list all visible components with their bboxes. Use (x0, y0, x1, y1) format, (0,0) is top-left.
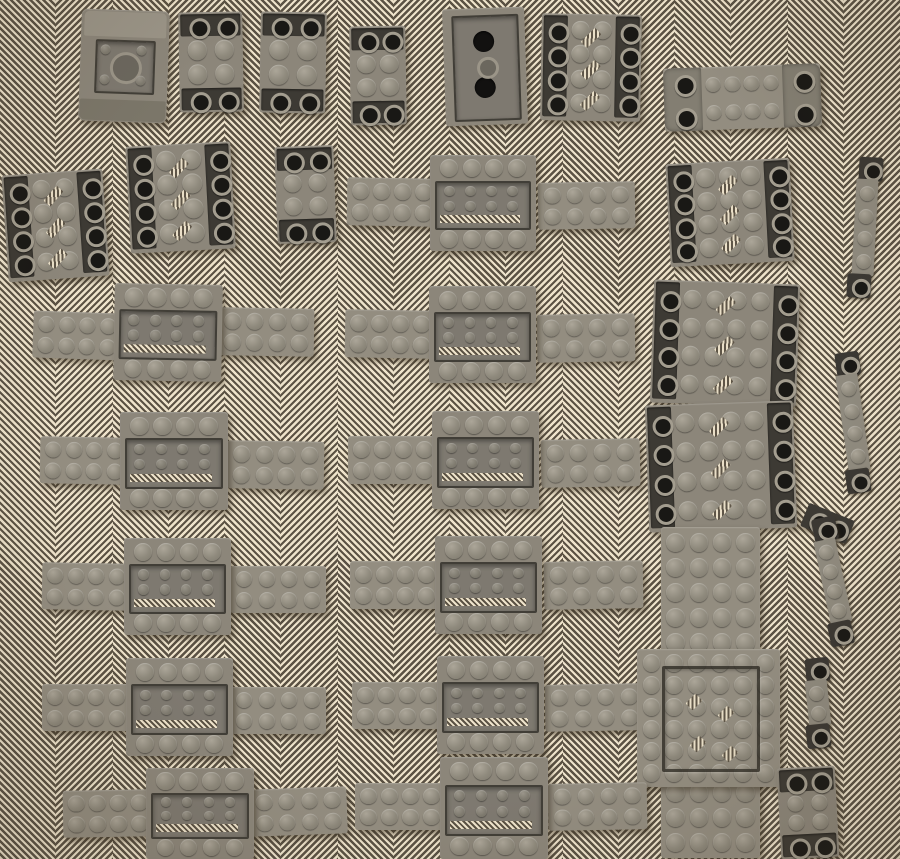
lego-inverted-slope-brick-2x3 (274, 145, 336, 244)
hollow-stud (358, 31, 379, 52)
stud (395, 441, 412, 458)
lego-vehicle-mudguard-plate-2x8 (663, 63, 822, 131)
stud (472, 703, 483, 714)
hollow-stud (86, 250, 108, 272)
hollow-stud (769, 189, 791, 211)
hollow-stud (81, 177, 103, 199)
lego-double-inverted-slope-brick (540, 13, 642, 122)
stud (183, 705, 194, 716)
stud (666, 583, 685, 602)
stud (443, 317, 454, 328)
stud (176, 489, 194, 507)
stud (134, 459, 145, 470)
slope-face-bottom (782, 833, 837, 858)
hollow-stud (212, 198, 234, 220)
open-bottom-gap (442, 473, 523, 481)
stud (488, 416, 506, 434)
stud (596, 566, 613, 583)
stud (566, 340, 583, 357)
stud (454, 790, 465, 801)
hollow-stud (775, 499, 797, 521)
lego-plate (541, 438, 641, 488)
hollow-stud (132, 154, 154, 176)
slope-face-left (652, 282, 680, 400)
lego-vehicle-base-4x6-recessed-center (430, 155, 536, 251)
open-bottom-gap (447, 718, 528, 726)
stud (746, 469, 766, 489)
stud (450, 762, 468, 780)
stud (255, 467, 272, 484)
hollow-stud (789, 837, 811, 859)
slope-face-top (779, 768, 834, 793)
stud (643, 720, 661, 738)
stud (413, 336, 430, 353)
hollow-stud (299, 93, 320, 114)
stud (445, 613, 463, 631)
hollow-stud (658, 347, 680, 369)
hollow-stud (213, 223, 235, 245)
stud (617, 464, 634, 481)
stud (589, 340, 606, 357)
stud (444, 201, 454, 211)
stud-strip (813, 538, 852, 626)
stud (380, 54, 399, 73)
stud (468, 541, 486, 559)
wedge-underside (94, 39, 156, 95)
stud (489, 458, 500, 469)
lego-stud-strip-with-end-bricks (820, 349, 885, 495)
stud (544, 188, 561, 205)
stud (135, 75, 145, 85)
stud (99, 74, 109, 84)
hollow-stud (810, 728, 831, 749)
stud (713, 833, 732, 852)
stud (713, 583, 732, 602)
stud (199, 459, 210, 470)
stud (182, 663, 200, 681)
stud (153, 417, 171, 435)
recessed-center (434, 312, 531, 362)
stud (136, 735, 154, 753)
lego-double-inverted-slope-brick (125, 141, 235, 253)
stud (176, 417, 194, 435)
stud (543, 341, 560, 358)
stud (259, 713, 275, 729)
hollow-stud (209, 150, 231, 172)
stud (497, 790, 508, 801)
stud (204, 811, 214, 821)
stud (476, 806, 487, 817)
stud (666, 558, 685, 577)
stud (180, 839, 197, 856)
stud (446, 443, 457, 454)
stud (510, 443, 521, 454)
stud (705, 318, 724, 337)
stud (352, 203, 369, 220)
anti-stud-hole (473, 31, 495, 53)
open-bottom-gap (439, 347, 520, 355)
stud (493, 661, 511, 679)
stud (373, 204, 390, 221)
stud (513, 568, 524, 579)
hollow-stud (218, 91, 239, 112)
stud (125, 288, 144, 307)
stud (811, 794, 827, 810)
stud (256, 814, 273, 831)
stud (161, 797, 171, 807)
stud (643, 676, 661, 694)
stud (476, 790, 487, 801)
stud (454, 806, 465, 817)
stud (624, 808, 641, 825)
stud (612, 318, 629, 335)
stud (451, 688, 462, 699)
stud (420, 687, 436, 703)
stud (690, 808, 709, 827)
stud (394, 204, 411, 221)
slope-face-top (180, 13, 240, 36)
stud (643, 698, 661, 716)
stud (324, 812, 341, 829)
stud (188, 40, 208, 60)
hollow-stud (189, 18, 210, 39)
hollow-stud (619, 96, 640, 117)
stud (110, 815, 127, 832)
stud (156, 459, 167, 470)
stud (492, 568, 503, 579)
lego-vehicle-base-4x6-recessed-center (126, 658, 233, 756)
stud (418, 587, 435, 604)
stud (160, 584, 171, 595)
stud (226, 839, 243, 856)
stud (215, 40, 235, 60)
stud (750, 320, 769, 339)
slope-face-left (542, 15, 568, 116)
stud (497, 806, 508, 817)
stud (140, 690, 151, 701)
end-brick-bottom (846, 273, 871, 298)
lego-inverted-slope-brick-2x3 (349, 26, 407, 126)
stud (68, 710, 84, 726)
hollow-stud (851, 278, 871, 298)
hollow-stud (383, 104, 404, 125)
stud (690, 558, 709, 577)
stud (551, 710, 568, 727)
stud (161, 705, 172, 716)
stud (858, 208, 874, 224)
lego-double-inverted-slope-brick (645, 400, 797, 532)
lego-stud-strip-with-end-bricks (797, 514, 868, 650)
slope-face-bottom (352, 101, 404, 124)
slope-face-bottom (181, 87, 241, 110)
stud (787, 795, 803, 811)
end-brick-bottom (805, 723, 831, 749)
stud (507, 332, 518, 343)
stud (817, 544, 835, 562)
stud (360, 788, 376, 804)
brick-underside (451, 14, 522, 122)
hollow-stud (773, 441, 795, 463)
hollow-stud (774, 470, 796, 492)
stud (156, 444, 167, 455)
hollow-stud (676, 241, 698, 263)
stud (224, 312, 241, 329)
stud (297, 41, 317, 61)
stud (204, 705, 215, 716)
hollow-stud (312, 222, 334, 244)
stud (357, 55, 376, 74)
hollow-stud (548, 46, 569, 67)
stud (489, 443, 500, 454)
stud (450, 837, 468, 855)
stud (620, 586, 637, 603)
stud (508, 230, 526, 248)
hollow-stud (653, 445, 675, 467)
stud (467, 443, 478, 454)
stud (621, 688, 638, 705)
stud (488, 488, 506, 506)
stud (485, 230, 503, 248)
stud (543, 320, 560, 337)
stud (859, 186, 875, 202)
stud (128, 329, 139, 340)
hollow-stud (850, 472, 871, 493)
stud (203, 543, 221, 561)
lego-plate (537, 313, 636, 363)
lego-double-inverted-slope-brick (1, 169, 109, 283)
stud (402, 788, 418, 804)
stud (108, 589, 125, 606)
stud (171, 288, 190, 307)
stud (643, 764, 661, 782)
stud (225, 772, 243, 790)
stud (547, 466, 564, 483)
mudguard-end-left (663, 67, 703, 131)
hollow-stud (85, 226, 107, 248)
open-bottom-gap (130, 474, 212, 482)
recessed-center (119, 309, 218, 360)
stud (554, 809, 571, 826)
open-bottom-gap (134, 599, 215, 607)
stud (130, 489, 148, 507)
stud (550, 588, 567, 605)
stud (810, 705, 826, 721)
hollow-stud (133, 178, 155, 200)
stud (204, 797, 214, 807)
stud (309, 196, 328, 215)
stud (392, 336, 409, 353)
lego-plate (230, 566, 326, 613)
stud (269, 40, 289, 60)
hollow-stud (83, 201, 105, 223)
stud (447, 733, 465, 751)
stud (397, 566, 414, 583)
lego-plate (348, 436, 438, 484)
stud (371, 336, 388, 353)
stud (269, 334, 286, 351)
stud (161, 811, 171, 821)
hollow-stud (655, 503, 677, 525)
recessed-center (445, 785, 543, 837)
hollow-stud (14, 255, 36, 277)
hollow-stud (794, 103, 817, 126)
stud (486, 317, 497, 328)
stud (357, 687, 373, 703)
slope-face-left (667, 165, 696, 263)
open-bottom-gap (450, 821, 532, 829)
stud (179, 772, 197, 790)
stud (749, 348, 768, 367)
lego-plate (548, 782, 648, 831)
stud (449, 568, 460, 579)
stud (830, 602, 848, 620)
stud (465, 317, 476, 328)
stud (473, 837, 491, 855)
hollow-stud (284, 152, 306, 174)
stud (352, 182, 369, 199)
stud (150, 315, 161, 326)
stud (233, 466, 250, 483)
stud (89, 816, 106, 833)
slope-face-top (262, 13, 324, 36)
stud (736, 608, 755, 627)
recessed-center (442, 682, 539, 732)
stud (153, 489, 171, 507)
stud (511, 488, 529, 506)
stud (516, 661, 534, 679)
stud (199, 444, 210, 455)
stud (507, 317, 518, 328)
lego-plate (227, 440, 325, 490)
stud (171, 330, 182, 341)
stud (188, 64, 208, 84)
stud (399, 708, 415, 724)
stud (491, 613, 509, 631)
lego-plate (230, 687, 326, 734)
hollow-stud (652, 416, 674, 438)
lego-plate (538, 181, 636, 230)
stud (465, 201, 475, 211)
hollow-stud (672, 171, 694, 193)
lego-plate (249, 786, 348, 836)
lego-vehicle-base-4x6-recessed-center (120, 412, 228, 510)
stud (544, 208, 561, 225)
stud (413, 315, 430, 332)
stud (269, 65, 289, 85)
stud (301, 468, 318, 485)
hollow-stud (674, 194, 696, 216)
stud (486, 332, 497, 343)
stud (224, 333, 241, 350)
stud (193, 316, 204, 327)
stud (496, 762, 514, 780)
stud (225, 811, 235, 821)
slope-face-top (351, 28, 403, 51)
stud (378, 687, 394, 703)
stud-strip (835, 373, 870, 472)
stud (205, 735, 223, 753)
lego-plate (42, 562, 131, 611)
lego-slope-brick-2x2-underside (78, 8, 170, 123)
lego-double-inverted-slope-brick (650, 279, 800, 407)
stud (193, 330, 204, 341)
stud (463, 230, 481, 248)
stud (723, 470, 743, 490)
hollow-stud (135, 202, 157, 224)
stud (381, 809, 397, 825)
stud (486, 201, 496, 211)
stud (575, 710, 592, 727)
stud (510, 458, 521, 469)
stud (161, 690, 172, 701)
stud (194, 289, 213, 308)
stud (713, 533, 732, 552)
stud (550, 567, 567, 584)
stud (159, 663, 177, 681)
hollow-stud (768, 166, 790, 188)
stud (203, 614, 221, 632)
hollow-stud (210, 174, 232, 196)
lego-pieces-layer (0, 0, 900, 859)
stud (840, 380, 857, 397)
slope-face-left (127, 147, 156, 249)
stud (439, 362, 457, 380)
stud (677, 472, 697, 492)
stud (451, 703, 462, 714)
stud (416, 462, 433, 479)
slope-face-right (763, 160, 792, 258)
hollow-stud (382, 31, 403, 52)
stud (183, 690, 194, 701)
stud (696, 168, 716, 188)
stud (643, 742, 661, 760)
hollow-stud (793, 70, 816, 93)
stud (666, 833, 685, 852)
hollow-stud (659, 319, 681, 341)
stud (259, 592, 275, 608)
stud (446, 458, 457, 469)
stud (690, 833, 709, 852)
stud (470, 733, 488, 751)
stud (392, 315, 409, 332)
lego-plate (345, 309, 436, 359)
stud (822, 563, 840, 581)
stud (449, 583, 460, 594)
anti-stud-hole (474, 77, 496, 99)
stud (612, 207, 629, 224)
hollow-stud (657, 375, 679, 397)
stud (353, 441, 370, 458)
stud (690, 533, 709, 552)
stud (511, 416, 529, 434)
lego-plate (218, 307, 315, 357)
lego-inverted-slope-brick-2x3 (178, 11, 244, 112)
stud (513, 583, 524, 594)
hollow-stud (620, 23, 641, 44)
stud (485, 362, 503, 380)
stud (304, 592, 320, 608)
stud (180, 614, 198, 632)
slope-face-bottom (279, 218, 335, 242)
stud (678, 501, 698, 521)
stud (357, 708, 373, 724)
lego-vehicle-base-4x6-recessed-center (113, 283, 223, 382)
lego-plate-6x6-with-raised-frame (637, 649, 780, 787)
hollow-stud (270, 92, 291, 113)
stud (465, 332, 476, 343)
stud (180, 543, 198, 561)
stud (134, 444, 145, 455)
